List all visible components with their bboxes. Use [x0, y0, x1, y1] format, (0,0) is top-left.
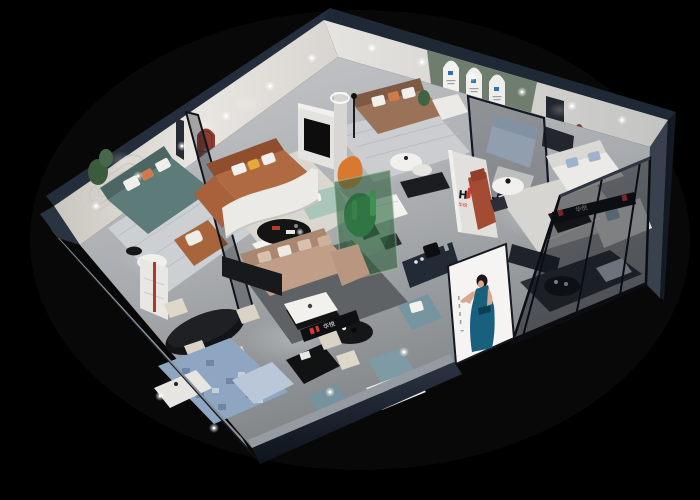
poster-logo-mark: [494, 87, 499, 91]
round-nesting-table: [412, 164, 432, 176]
red-shelf-accent: [153, 262, 156, 312]
plant: [99, 149, 113, 167]
lamp-head: [351, 93, 357, 99]
table-decor: [294, 224, 298, 228]
black-side-table: [126, 247, 142, 256]
plant: [418, 90, 430, 106]
table-decor: [404, 156, 408, 160]
face: [478, 280, 484, 287]
doorway-gap: [176, 118, 184, 160]
white-magazine: [286, 230, 295, 234]
table-decor: [308, 304, 312, 308]
cup: [414, 260, 418, 264]
display-object: [174, 382, 178, 386]
cup: [420, 257, 424, 261]
showroom-render: 华悦 H 华悦: [0, 0, 700, 500]
poster-logo-mark: [448, 71, 453, 75]
isometric-scene: 华悦 H 华悦: [0, 0, 700, 500]
logo-mark-H: H: [458, 188, 469, 202]
wall-spot-glow: [232, 95, 260, 113]
red-book: [272, 226, 280, 230]
espresso-machine: [351, 327, 357, 333]
black-vase: [505, 178, 510, 183]
